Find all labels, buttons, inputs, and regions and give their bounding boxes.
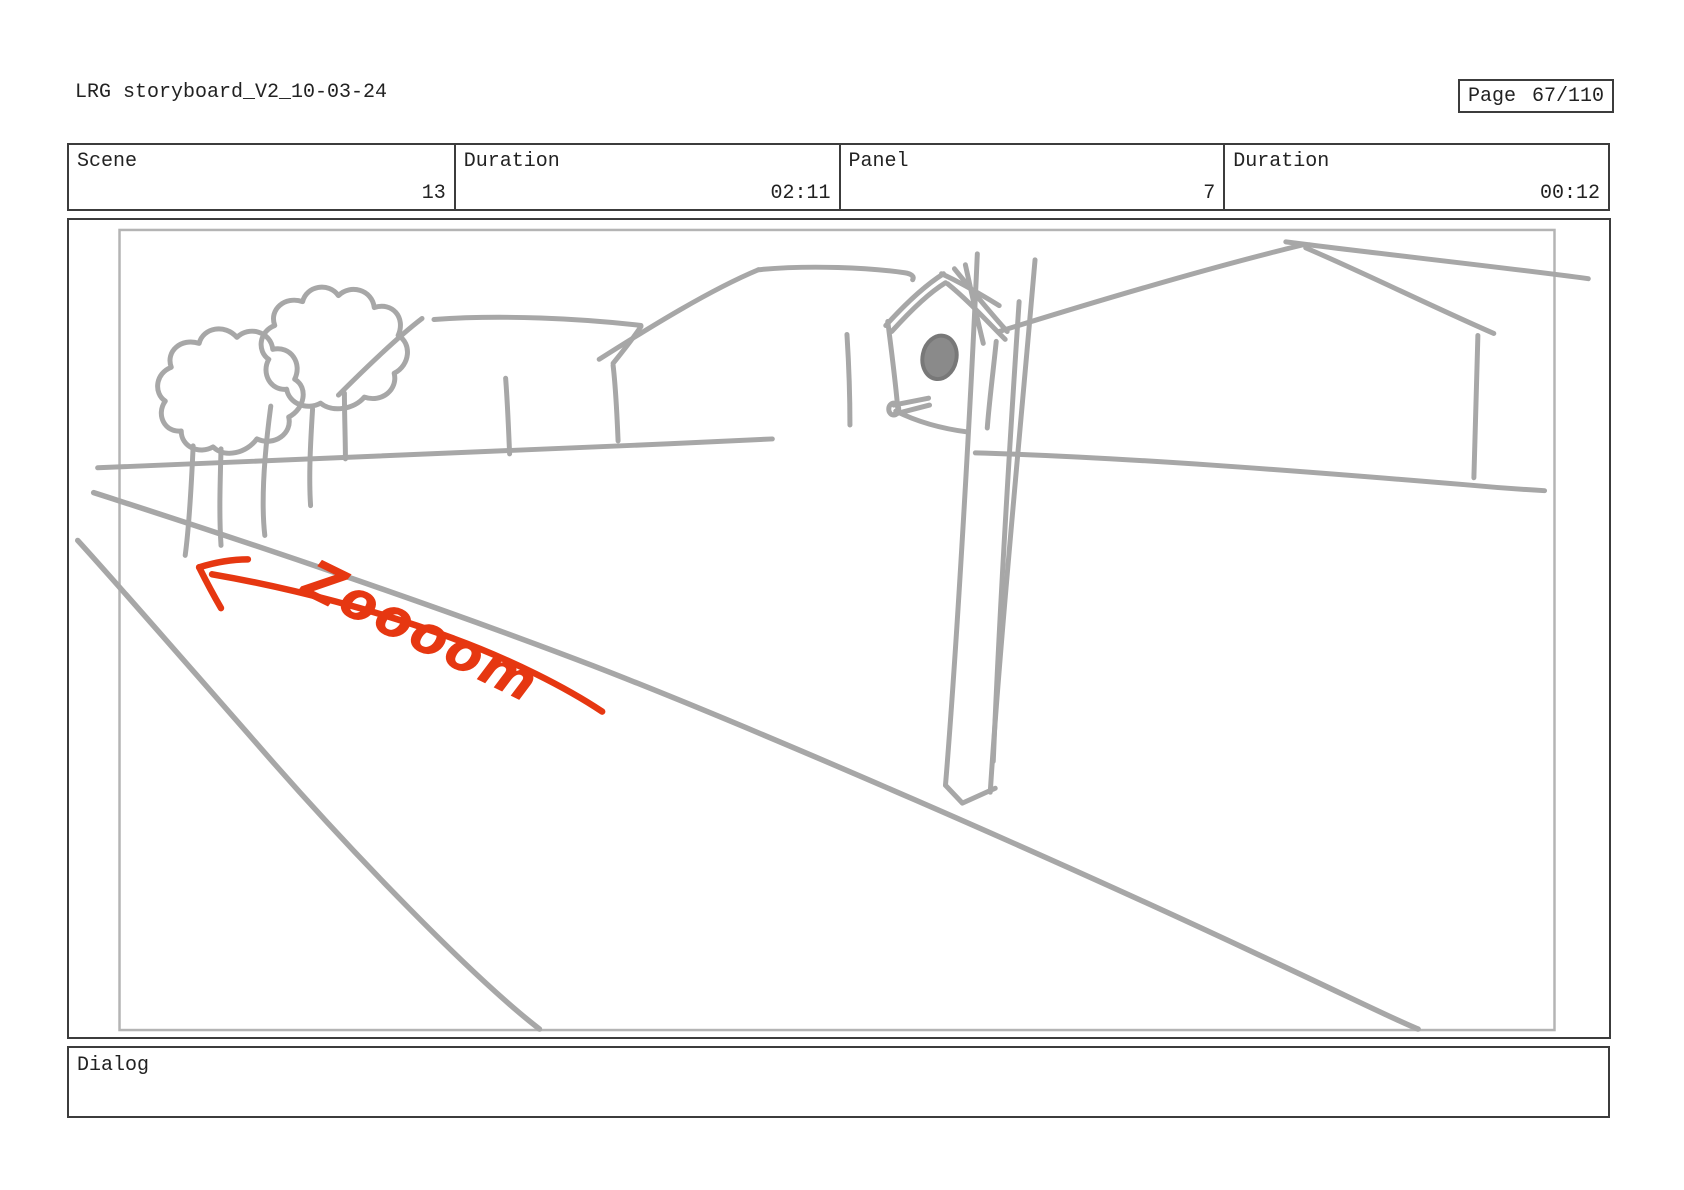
- house-right-sketch: [999, 242, 1588, 478]
- panel-duration-label: Duration: [1233, 150, 1329, 173]
- cell-panel-duration: Duration 00:12: [1223, 145, 1608, 209]
- scene-duration-label: Duration: [464, 150, 560, 173]
- page-number-value: 67/110: [1532, 85, 1604, 108]
- page-number-label: Page: [1468, 85, 1516, 108]
- trees-sketch: [158, 287, 408, 555]
- road-sketch: [78, 493, 1418, 1029]
- ground-line-sketch: [98, 439, 1545, 491]
- scene-duration-value: 02:11: [770, 182, 830, 205]
- cell-panel: Panel 7: [839, 145, 1224, 209]
- scene-label: Scene: [77, 150, 137, 173]
- page-title: LRG storyboard_V2_10-03-24: [75, 81, 387, 104]
- scene-value: 13: [422, 182, 446, 205]
- house-left-sketch: [338, 317, 641, 459]
- birdhouse-sketch: [886, 265, 1007, 432]
- page-number-box: Page 67/110: [1458, 79, 1614, 113]
- panel-label: Panel: [849, 150, 909, 173]
- storyboard-panel: Zoooom: [67, 218, 1611, 1039]
- dialog-label: Dialog: [77, 1054, 149, 1077]
- house-middle-sketch: [599, 267, 913, 425]
- dialog-box: Dialog: [67, 1046, 1610, 1118]
- inner-frame: [120, 230, 1555, 1030]
- birdhouse-post-sketch: [945, 254, 1035, 803]
- sketch-canvas: Zoooom: [69, 220, 1609, 1037]
- panel-duration-value: 00:12: [1540, 182, 1600, 205]
- panel-value: 7: [1203, 182, 1215, 205]
- zoom-arrow-sketch: Zoooom: [199, 546, 602, 715]
- cell-scene-duration: Duration 02:11: [454, 145, 839, 209]
- cell-scene: Scene 13: [69, 145, 454, 209]
- zoom-annotation-text: Zoooom: [291, 546, 549, 715]
- birdhouse-hole-icon: [918, 332, 960, 382]
- birdhouse-perch-icon: [889, 403, 899, 415]
- right-tree-trunk: [263, 406, 271, 535]
- info-table: Scene 13 Duration 02:11 Panel 7 Duration…: [67, 143, 1610, 211]
